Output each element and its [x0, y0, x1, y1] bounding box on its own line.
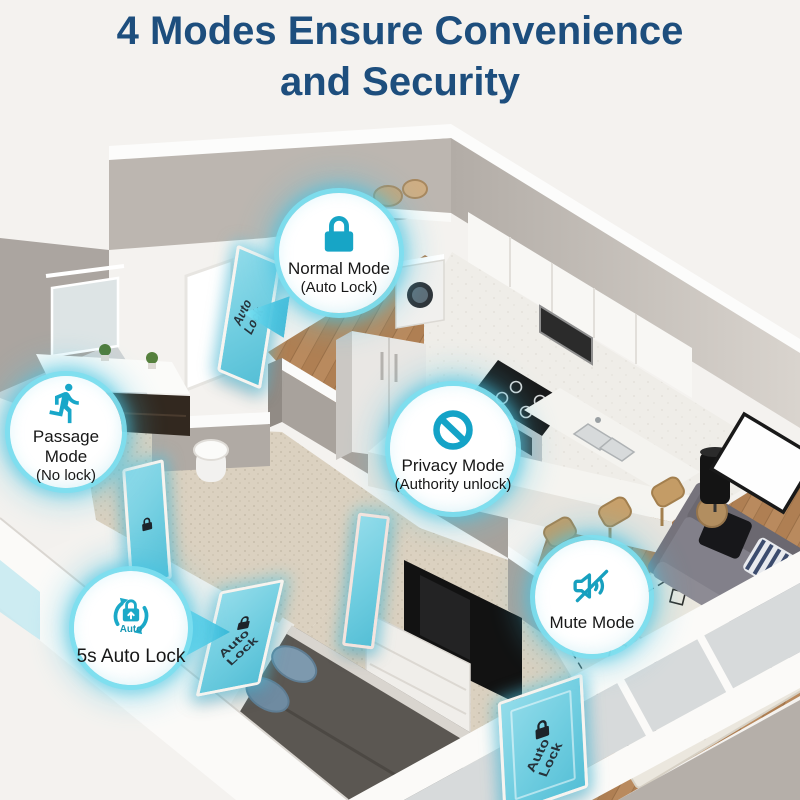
badge-sublabel: (Authority unlock) [395, 476, 512, 493]
muted-speaker-icon [567, 561, 617, 611]
lock-icon [139, 514, 156, 534]
running-person-icon [44, 381, 88, 425]
product-infographic: Auto Lock Auto Lock Auto Lock Normal Mod… [0, 0, 800, 800]
badge-label: Privacy Mode [402, 456, 505, 476]
badge-label: Mute Mode [549, 613, 634, 633]
auto-lock-refresh-icon: Auto [103, 588, 159, 644]
washer [396, 254, 444, 328]
door-auto-lock-label: Auto Lock [523, 737, 564, 778]
badge-5s-auto-lock: Auto 5s Auto Lock [74, 571, 188, 685]
badge-sublabel: (No lock) [36, 467, 96, 484]
badge-normal-mode: Normal Mode (Auto Lock) [279, 193, 399, 313]
no-entry-icon [429, 406, 477, 454]
badge-sublabel: (Auto Lock) [301, 279, 378, 296]
page-title: 4 Modes Ensure Convenience and Security [0, 6, 800, 108]
toilet [194, 440, 228, 482]
badge-label: Normal Mode [288, 259, 390, 279]
title-line-2: and Security [0, 57, 800, 108]
badge-privacy-mode: Privacy Mode (Authority unlock) [390, 386, 516, 512]
badge-label: 5s Auto Lock [77, 646, 186, 668]
lock-icon [316, 211, 362, 257]
badge-label: Passage Mode [10, 427, 122, 467]
badge-passage-mode: Passage Mode (No lock) [10, 376, 122, 488]
title-line-1: 4 Modes Ensure Convenience [0, 6, 800, 57]
badge-mute-mode: Mute Mode [535, 540, 649, 654]
hallway-upper-door [122, 459, 172, 589]
auto-text: Auto [120, 624, 143, 635]
